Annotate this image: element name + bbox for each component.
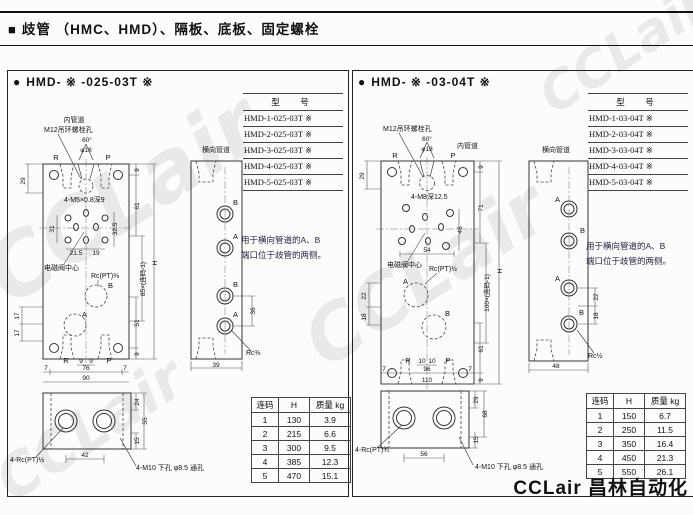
rc-side-label: Rc⅜ (246, 350, 261, 357)
dim-h: H (152, 260, 159, 265)
port-a-label: A (403, 277, 408, 286)
panel-title: ●HMD- ※ -025-03T ※ (13, 75, 153, 89)
spec-cell: 300 (279, 441, 310, 455)
dim-48: 48 (552, 363, 560, 370)
dia-dim: φ18 (421, 146, 433, 153)
spec-cell: 215 (279, 427, 310, 441)
spec-cell: 1 (252, 413, 279, 427)
spec-cell: 16.4 (645, 437, 686, 451)
tap-label: 4-M8深12.5 (411, 192, 448, 201)
spec-cell: 350 (614, 437, 645, 451)
dim-29: 29 (473, 396, 480, 404)
cross-pipe-label: 横向管道 (542, 145, 570, 154)
dim-36: 36 (250, 307, 257, 315)
spec-header: 质量 kg (310, 398, 351, 413)
port-b-label: B (108, 281, 113, 290)
dim-55: 55 (142, 417, 149, 425)
spec-header: 质量 kg (645, 394, 686, 409)
brand-footer: CCLair 昌林自动化 (513, 473, 688, 500)
rc-bottom-label: 4-Rc(PT)¾ (355, 447, 389, 454)
model-row: HMD-1-03-04T ※ (588, 111, 688, 127)
bullet-icon: ● (13, 75, 21, 89)
dim-10: 10 (428, 358, 436, 365)
spec-cell: 3 (587, 437, 614, 451)
bottom-view (381, 391, 469, 448)
m12-label: M12吊环螺栓孔 (44, 125, 93, 134)
inner-pipe-label: 内管道 (64, 115, 85, 124)
dim-15: 15 (134, 437, 141, 445)
spec-cell: 4 (587, 451, 614, 465)
page-header: ■歧管 （HMC、HMD）、隔板、底板、固定螺栓 (0, 11, 693, 46)
page-title: 歧管 （HMC、HMD）、隔板、底板、固定螺栓 (22, 22, 320, 37)
dim-9: 9 (134, 352, 141, 356)
dim-61: 61 (134, 202, 141, 210)
port-b-label: B (233, 280, 238, 289)
spec-cell: 6.6 (310, 427, 351, 441)
rc-center-label: Rc(PT)½ (429, 265, 457, 273)
port-r-label: R (53, 153, 59, 162)
dim-18: 18 (593, 312, 600, 320)
spec-cell: 2 (587, 423, 614, 437)
inner-pipe-label: 内管道 (457, 141, 478, 150)
model-row: HMD-4-03-04T ※ (588, 159, 688, 175)
port-r-label: R (63, 356, 69, 365)
spec-cell: 385 (279, 455, 310, 469)
spec-header: 连码 (587, 394, 614, 409)
side-view (529, 161, 588, 361)
port-a-label: A (555, 274, 560, 283)
note-line: 用于横向管道的A、B (241, 233, 345, 248)
dim-17: 17 (14, 312, 21, 320)
spec-header: 连码 (252, 398, 279, 413)
dim-22: 22 (361, 292, 368, 300)
rc-center-label: Rc(PT)⅜ (91, 273, 119, 280)
angle-dim: 60° (82, 136, 92, 144)
transverse-note: 用于横向管道的A、B 端口位于歧管的两侧。 (586, 239, 690, 270)
model-row: HMD-3-025-03T ※ (243, 143, 343, 159)
dim-h: H (497, 268, 504, 273)
dim-76: 76 (82, 365, 90, 372)
dim-9: 9 (134, 168, 141, 172)
dim-54: 54 (423, 247, 431, 254)
port-p-label: P (450, 151, 455, 160)
spec-cell: 2 (252, 427, 279, 441)
port-r-label: R (405, 356, 411, 365)
bottom-view (43, 393, 131, 449)
spec-table: 连码 H 质量 kg 11506.7 225011.5 335016.4 445… (586, 393, 686, 479)
cross-pipe-label: 横向管道 (202, 145, 230, 154)
model-row: HMD-1-025-03T ※ (243, 111, 343, 127)
solenoid-center-label: 电磁阀中心 (387, 260, 422, 269)
model-row: HMD-3-03-04T ※ (588, 143, 688, 159)
model-table-header: 型 号 (243, 93, 343, 111)
dim-15: 15 (473, 436, 480, 444)
port-b-label: B (580, 226, 585, 235)
model-table-header: 型 号 (588, 93, 688, 111)
rc-side-label: Rc½ (588, 352, 603, 360)
dim-31: 31 (49, 225, 56, 233)
model-row: HMD-2-025-03T ※ (243, 127, 343, 143)
spec-cell: 12.3 (310, 455, 351, 469)
note-line: 端口位于歧管的两侧。 (241, 248, 345, 263)
m12-label: M12吊环螺栓孔 (383, 124, 432, 133)
spec-cell: 130 (279, 413, 310, 427)
dim-18: 18 (361, 313, 368, 321)
dim-110: 110 (422, 377, 433, 384)
panel-hmd-03-04t: ●HMD- ※ -03-04T ※ 型 号 HMD-1-03-04T ※ HMD… (352, 70, 693, 497)
model-table: 型 号 HMD-1-03-04T ※ HMD-2-03-04T ※ HMD-3-… (588, 93, 688, 191)
port-a-label: A (233, 310, 238, 319)
dim-46: 46 (457, 226, 464, 234)
model-table: 型 号 HMD-1-025-03T ※ HMD-2-025-03T ※ HMD-… (243, 93, 343, 191)
dim-pitch: 85×(连码-1) (138, 262, 147, 296)
model-row: HMD-5-03-04T ※ (588, 175, 688, 191)
dim-29: 29 (359, 172, 366, 180)
model-row: HMD-5-025-03T ※ (243, 175, 343, 191)
angle-dim: 60° (422, 135, 432, 143)
spec-cell: 6.7 (645, 409, 686, 423)
rc-bottom-label: 4-Rc(PT)½ (10, 456, 44, 464)
spec-header: H (279, 398, 310, 413)
dim-21-5: 21.5 (70, 250, 83, 257)
model-row: HMD-4-025-03T ※ (243, 159, 343, 175)
port-a-label: A (233, 232, 238, 241)
spec-cell: 150 (614, 409, 645, 423)
port-b-label: B (233, 198, 238, 207)
dim-42: 42 (81, 452, 89, 459)
m10-label: 4-M10 下孔 φ8.5 通孔 (136, 463, 204, 472)
dim-7: 7 (123, 365, 127, 372)
dim-9: 9 (89, 358, 93, 365)
dim-10: 10 (418, 358, 426, 365)
dim-7: 7 (382, 366, 386, 373)
spec-cell: 5 (252, 469, 279, 483)
dim-68: 68 (482, 410, 489, 418)
dim-9: 9 (478, 165, 485, 169)
spec-cell: 4 (252, 455, 279, 469)
dim-7: 7 (468, 366, 472, 373)
dim-61: 61 (478, 345, 485, 353)
spec-cell: 450 (614, 451, 645, 465)
dim-56: 56 (420, 451, 428, 458)
dim-pitch: 100×(连码-1) (482, 274, 491, 312)
dim-19: 19 (92, 250, 100, 257)
dim-96: 96 (423, 366, 431, 373)
port-a-label: A (555, 195, 560, 204)
side-view (191, 161, 242, 359)
dim-22: 22 (593, 293, 600, 301)
spec-header: H (614, 394, 645, 409)
dia-dim: φ18 (80, 147, 92, 154)
spec-cell: 1 (587, 409, 614, 423)
spec-cell: 470 (279, 469, 310, 483)
bullet-icon: ● (358, 75, 366, 89)
transverse-note: 用于横向管道的A、B 端口位于歧管的两侧。 (241, 233, 345, 264)
section-marker-icon: ■ (8, 22, 16, 37)
spec-table: 连码 H 质量 kg 11303.9 22156.6 33009.5 43851… (251, 397, 351, 483)
spec-cell: 15.1 (310, 469, 351, 483)
spec-cell: 250 (614, 423, 645, 437)
panel-model-code: HMD- ※ -03-04T ※ (371, 75, 490, 89)
dim-90: 90 (82, 375, 90, 382)
port-b-label: B (579, 308, 584, 317)
m10-label: 4-M10 下孔 φ8.5 通孔 (475, 462, 543, 471)
dim-71: 71 (478, 204, 485, 212)
port-p-label: P (445, 356, 450, 365)
dim-7: 7 (44, 365, 48, 372)
spec-cell: 3.9 (310, 413, 351, 427)
panel-hmd-025-03t: ●HMD- ※ -025-03T ※ 型 号 HMD-1-025-03T ※ H… (7, 70, 349, 497)
note-line: 用于横向管道的A、B (586, 239, 690, 254)
port-p-label: P (105, 153, 110, 162)
dim-32-5: 32.5 (112, 222, 119, 235)
dim-24: 24 (134, 398, 141, 406)
dim-17: 17 (14, 329, 21, 337)
dim-9: 9 (478, 378, 485, 382)
dim-9: 9 (79, 358, 83, 365)
port-b-label: B (445, 309, 450, 318)
spec-cell: 11.5 (645, 423, 686, 437)
spec-cell: 9.5 (310, 441, 351, 455)
port-r-label: R (392, 151, 398, 160)
panel-title: ●HMD- ※ -03-04T ※ (358, 75, 491, 89)
dim-29: 29 (20, 177, 27, 185)
port-p-label: P (106, 356, 111, 365)
dim-39: 39 (212, 362, 220, 369)
port-a-label: A (82, 310, 87, 319)
panel-model-code: HMD- ※ -025-03T ※ (26, 75, 153, 89)
spec-cell: 21.3 (645, 451, 686, 465)
tap-label: 4-M5×0.8深9 (64, 195, 105, 204)
model-row: HMD-2-03-04T ※ (588, 127, 688, 143)
dim-51: 51 (134, 319, 141, 327)
note-line: 端口位于歧管的两侧。 (586, 254, 690, 269)
spec-cell: 3 (252, 441, 279, 455)
solenoid-center-label: 电磁阀中心 (44, 263, 79, 272)
